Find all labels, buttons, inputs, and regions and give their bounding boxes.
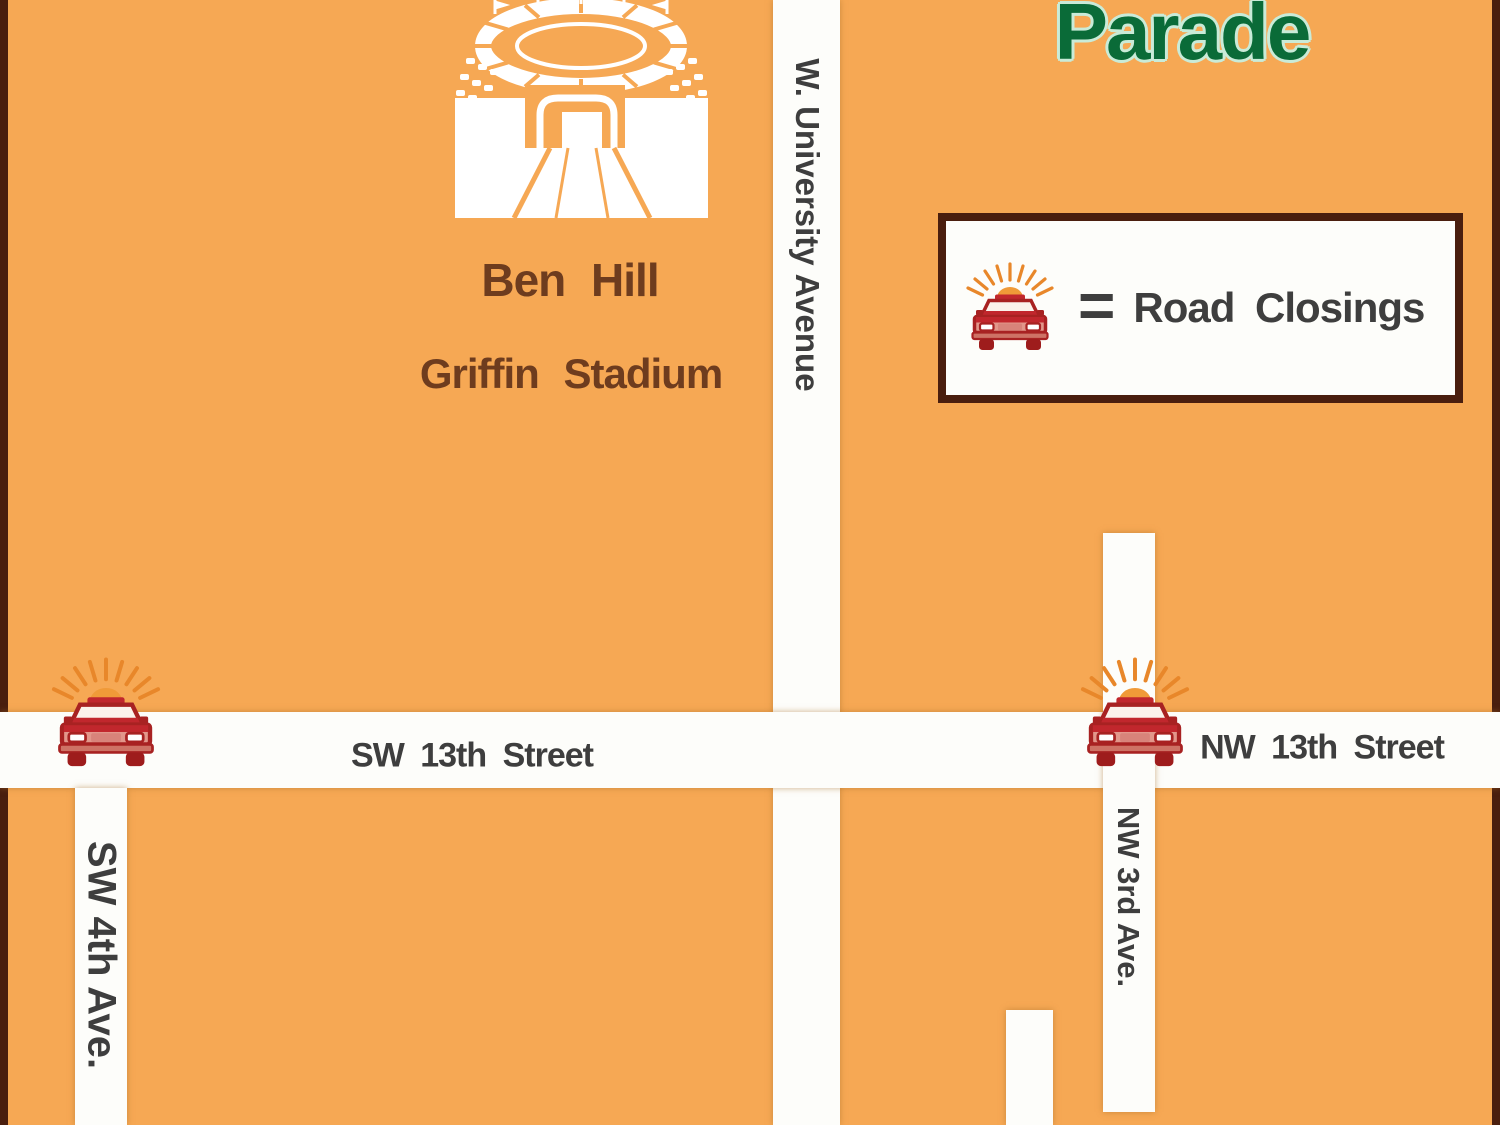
legend-equals-sign: = — [1078, 268, 1115, 342]
street-label-nw-13th-street: NW 13th Street — [1200, 729, 1444, 768]
road-closings-map: Ben Hill Griffin Stadium Parade = Road C… — [0, 0, 1500, 1125]
police-car-icon — [960, 258, 1060, 358]
street-label-sw-4th-ave: SW 4th Ave. — [79, 841, 124, 1069]
stadium-icon — [450, 0, 713, 218]
street-label-sw-13th-street: SW 13th Street — [351, 737, 593, 776]
legend-label: Road Closings — [1133, 284, 1424, 332]
road-closure-marker-sw — [44, 652, 168, 776]
road-segment-bottom — [1006, 1010, 1053, 1125]
legend-box: = Road Closings — [938, 213, 1463, 403]
road-closure-marker-nw — [1073, 652, 1197, 776]
street-label-nw-3rd-ave: NW 3rd Ave. — [1110, 807, 1146, 987]
map-border-right — [1492, 0, 1500, 1125]
stadium-label-line1: Ben Hill — [481, 253, 658, 307]
street-label-w-university-avenue: W. University Avenue — [788, 58, 826, 391]
page-title: Parade — [1055, 0, 1310, 78]
map-border-left — [0, 0, 8, 1125]
stadium-label-line2: Griffin Stadium — [420, 350, 722, 398]
